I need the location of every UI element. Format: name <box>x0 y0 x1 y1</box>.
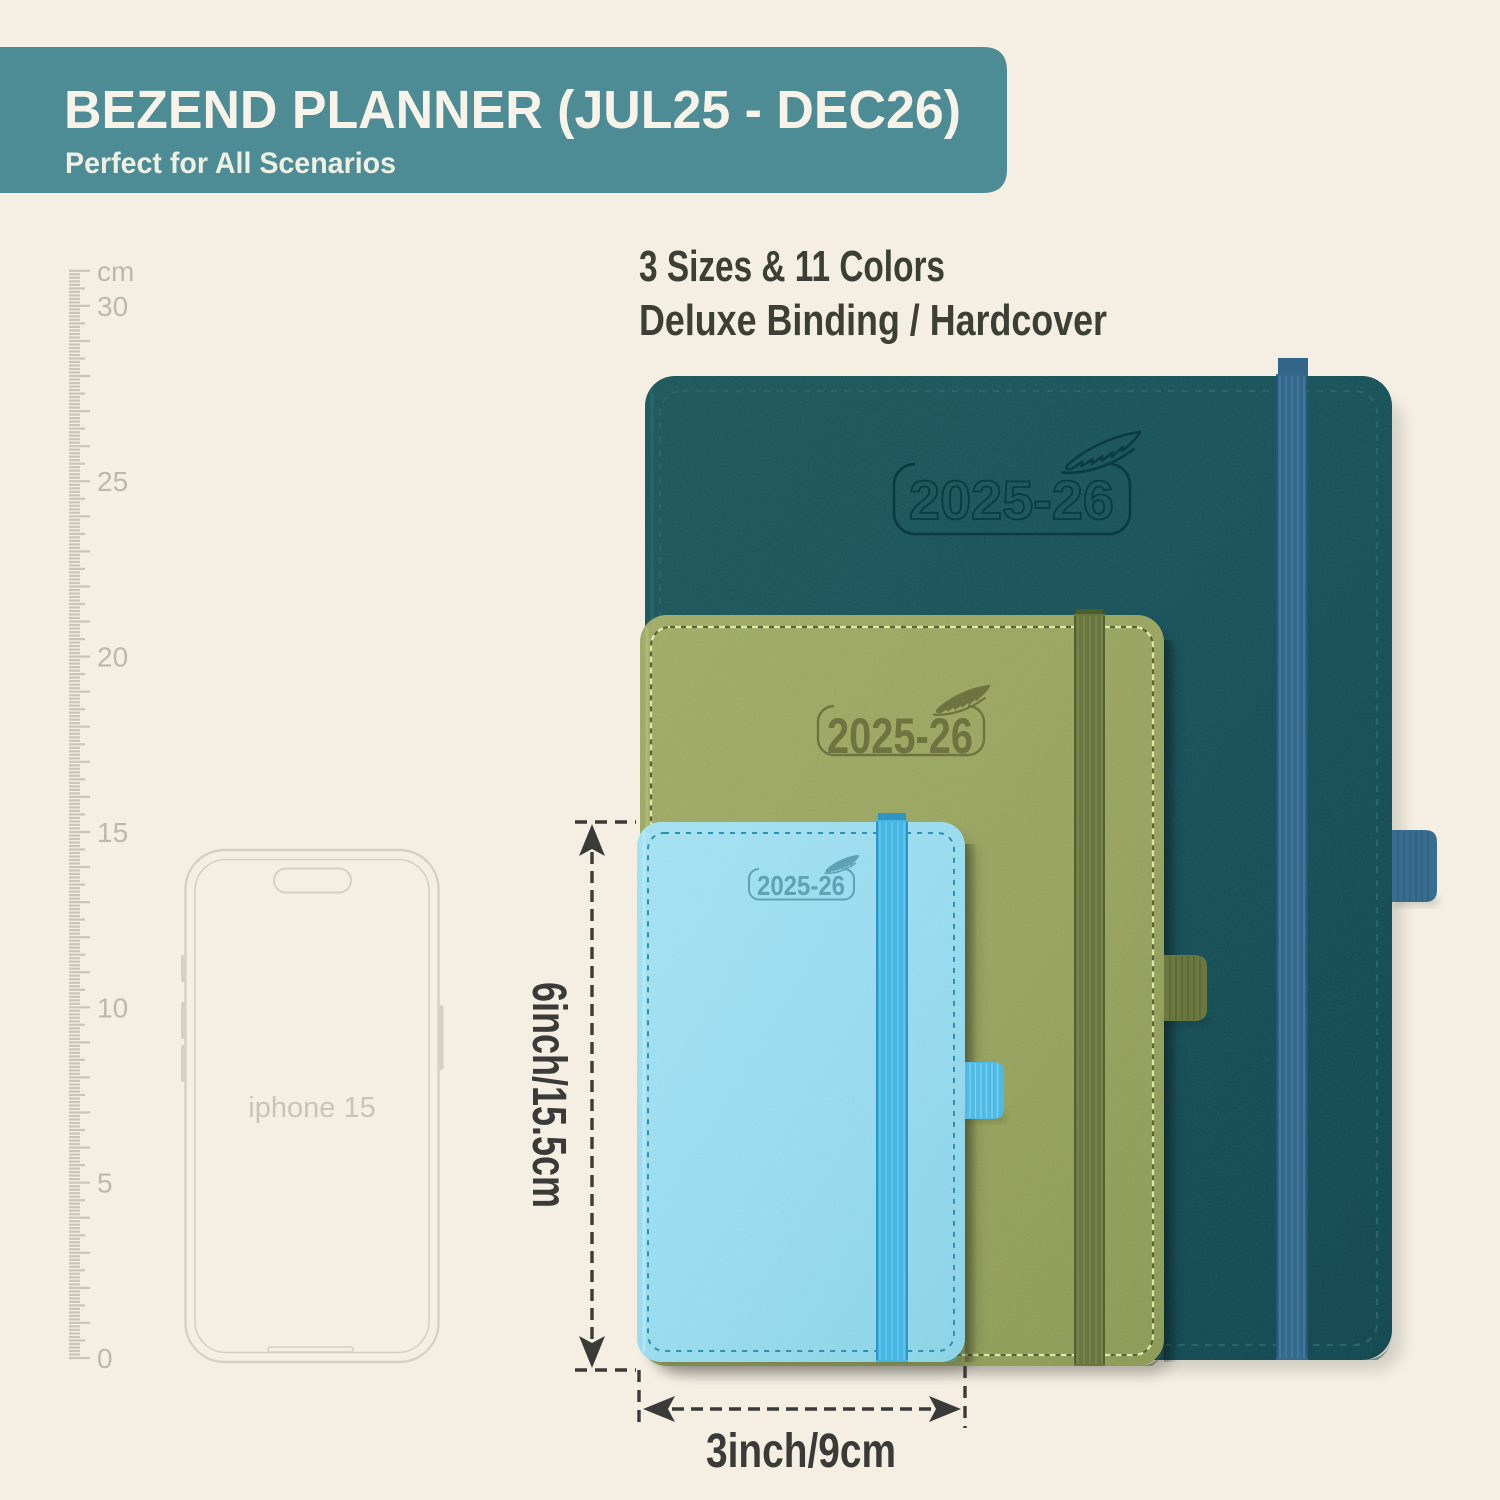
svg-text:30: 30 <box>97 291 128 322</box>
svg-text:0: 0 <box>97 1343 113 1374</box>
svg-text:15: 15 <box>97 817 128 848</box>
svg-text:cm: cm <box>97 256 134 287</box>
svg-text:BEZEND PLANNER (JUL25 - DEC26): BEZEND PLANNER (JUL25 - DEC26) <box>64 80 961 140</box>
svg-text:6inch/15.5cm: 6inch/15.5cm <box>522 982 575 1208</box>
svg-text:20: 20 <box>97 642 128 673</box>
svg-text:3inch/9cm: 3inch/9cm <box>706 1425 896 1478</box>
svg-text:2025-26: 2025-26 <box>827 708 973 764</box>
svg-text:iphone 15: iphone 15 <box>248 1092 375 1124</box>
svg-text:3 Sizes & 11 Colors: 3 Sizes & 11 Colors <box>639 242 945 291</box>
svg-text:Deluxe Binding / Hardcover: Deluxe Binding / Hardcover <box>639 296 1107 345</box>
svg-text:2025-26: 2025-26 <box>909 469 1114 531</box>
svg-text:5: 5 <box>97 1168 113 1199</box>
svg-text:25: 25 <box>97 466 128 497</box>
svg-text:2025-26: 2025-26 <box>757 870 845 901</box>
svg-text:10: 10 <box>97 992 128 1023</box>
svg-text:Perfect for All Scenarios: Perfect for All Scenarios <box>65 147 396 180</box>
